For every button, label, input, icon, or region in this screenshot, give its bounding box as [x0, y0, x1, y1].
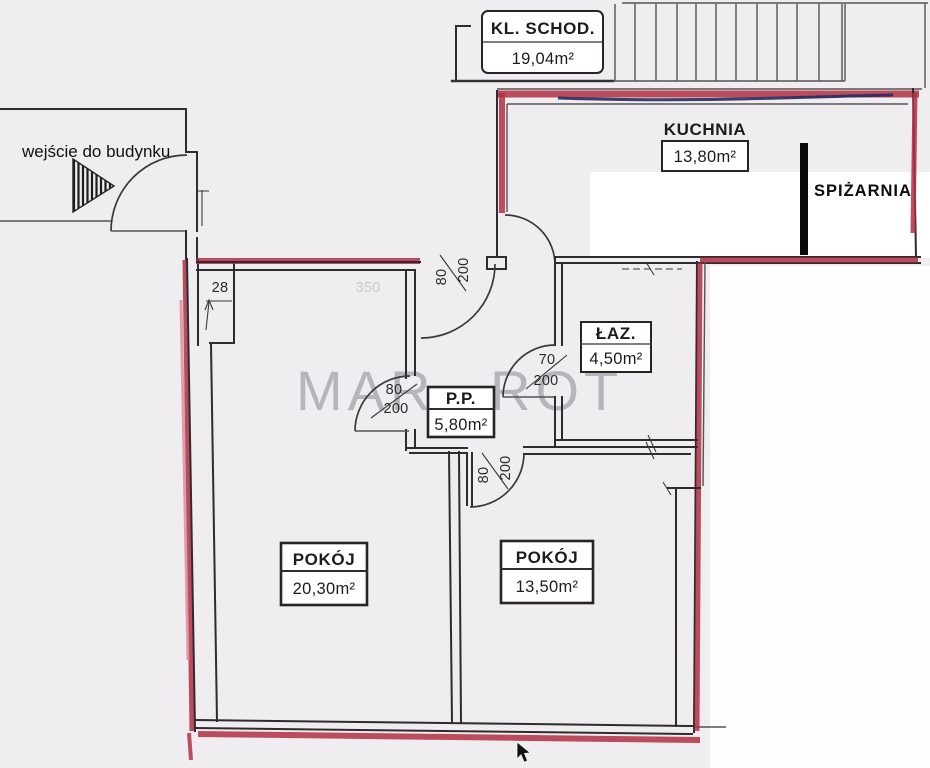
svg-text:200: 200	[383, 401, 408, 417]
floorplan-canvas: MAR ROT KL. SCHOD. 19,04m²	[0, 0, 930, 768]
hall-name: P.P.	[446, 389, 476, 408]
kitchen-name: KUCHNIA	[664, 120, 747, 139]
svg-text:200: 200	[498, 455, 514, 480]
svg-text:200: 200	[533, 373, 558, 389]
pantry-divider-bar	[800, 143, 808, 255]
hall-area: 5,80m²	[434, 416, 487, 434]
svg-text:80: 80	[476, 467, 492, 484]
svg-text:80: 80	[434, 269, 450, 286]
large-room-label: POKÓJ 20,30m²	[281, 543, 367, 605]
bathroom-name: ŁAZ.	[596, 324, 636, 343]
small-room-label: POKÓJ 13,50m²	[501, 541, 593, 603]
pantry-name: SPIŻARNIA	[814, 182, 912, 200]
staircase-area: 19,04m²	[512, 50, 575, 68]
small-room-area: 13,50m²	[516, 578, 579, 596]
floorplan-svg: MAR ROT KL. SCHOD. 19,04m²	[0, 0, 930, 768]
large-room-name: POKÓJ	[293, 550, 356, 569]
entrance-label: wejście do budynku	[21, 142, 170, 161]
staircase-name: KL. SCHOD.	[491, 19, 595, 38]
large-room-area: 20,30m²	[293, 580, 356, 598]
small-room-name: POKÓJ	[516, 548, 579, 567]
dim-faint-350: 350	[355, 280, 380, 296]
svg-text:200: 200	[456, 257, 472, 282]
svg-text:80: 80	[386, 382, 403, 398]
kitchen-area: 13,80m²	[674, 148, 737, 166]
svg-text:70: 70	[539, 352, 556, 368]
dim-wall-offset: 28	[212, 280, 229, 296]
right-white-panel	[710, 266, 930, 768]
bathroom-area: 4,50m²	[589, 350, 642, 368]
